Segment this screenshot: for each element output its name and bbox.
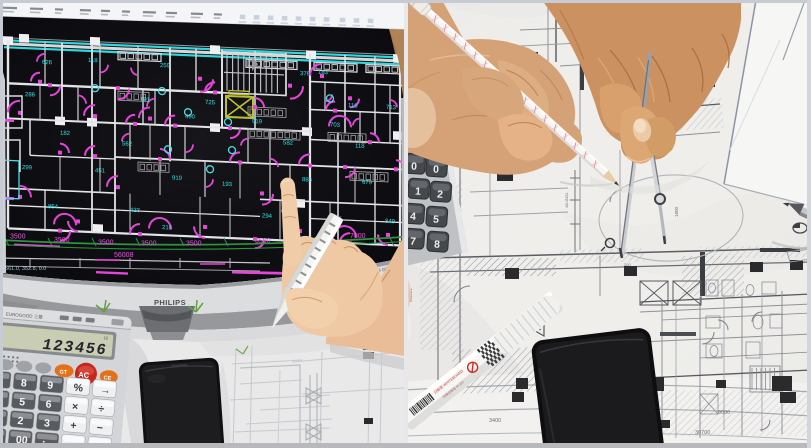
svg-text:GT: GT bbox=[59, 369, 68, 376]
svg-text:849: 849 bbox=[385, 219, 396, 225]
svg-text:3500: 3500 bbox=[141, 241, 157, 248]
svg-text:−: − bbox=[96, 422, 103, 434]
svg-text:9000: 9000 bbox=[718, 410, 730, 416]
svg-text:679: 679 bbox=[362, 180, 373, 186]
svg-text:8: 8 bbox=[20, 377, 27, 389]
svg-text:0: 0 bbox=[433, 163, 440, 175]
svg-text:376: 376 bbox=[300, 71, 311, 77]
svg-text:713: 713 bbox=[386, 105, 397, 111]
svg-text:116: 116 bbox=[348, 103, 358, 109]
svg-text:919: 919 bbox=[172, 176, 183, 182]
svg-text:286: 286 bbox=[25, 92, 36, 98]
svg-text:3500: 3500 bbox=[186, 241, 202, 248]
svg-text:259: 259 bbox=[160, 63, 171, 69]
svg-text:118: 118 bbox=[355, 144, 365, 150]
svg-text:%: % bbox=[73, 382, 84, 395]
svg-text:+: + bbox=[70, 420, 77, 432]
svg-text:182: 182 bbox=[60, 131, 71, 137]
svg-text:3561.0, 352.8, 0.0: 3561.0, 352.8, 0.0 bbox=[2, 266, 46, 272]
svg-text:9: 9 bbox=[47, 379, 54, 391]
svg-text:886: 886 bbox=[302, 177, 313, 183]
svg-text:8: 8 bbox=[434, 238, 441, 250]
svg-text:3: 3 bbox=[43, 417, 50, 429]
svg-text:725: 725 bbox=[205, 100, 216, 106]
svg-text:191: 191 bbox=[140, 97, 151, 103]
svg-text:2: 2 bbox=[437, 188, 444, 200]
svg-text:46145251: 46145251 bbox=[565, 192, 569, 208]
svg-text:4: 4 bbox=[410, 210, 417, 222]
svg-text:193: 193 bbox=[222, 182, 233, 188]
svg-text:PHILIPS: PHILIPS bbox=[154, 298, 186, 307]
svg-text:×: × bbox=[72, 401, 79, 413]
svg-text:3400: 3400 bbox=[489, 418, 501, 424]
svg-text:919: 919 bbox=[252, 119, 263, 125]
svg-text:294: 294 bbox=[262, 213, 273, 219]
svg-text:854: 854 bbox=[48, 204, 59, 210]
svg-text:118: 118 bbox=[88, 58, 98, 64]
svg-text:1: 1 bbox=[415, 185, 422, 197]
svg-text:562: 562 bbox=[122, 141, 133, 147]
svg-text:3500: 3500 bbox=[54, 237, 70, 244]
svg-text:5: 5 bbox=[433, 213, 440, 225]
svg-text:703: 703 bbox=[330, 122, 341, 128]
svg-text:0: 0 bbox=[411, 160, 418, 172]
svg-text:30700: 30700 bbox=[695, 430, 710, 436]
svg-text:3500: 3500 bbox=[10, 234, 26, 241]
svg-text:200: 200 bbox=[624, 262, 631, 267]
svg-text:7000: 7000 bbox=[350, 233, 366, 240]
svg-text:7: 7 bbox=[410, 235, 417, 247]
svg-text:626: 626 bbox=[42, 60, 53, 66]
svg-text:183: 183 bbox=[318, 70, 329, 76]
svg-text:3500: 3500 bbox=[98, 239, 114, 246]
svg-text:→: → bbox=[100, 384, 112, 397]
svg-text:6: 6 bbox=[45, 398, 52, 410]
svg-text:423: 423 bbox=[130, 208, 141, 214]
svg-text:451: 451 bbox=[95, 168, 106, 174]
svg-text:2: 2 bbox=[17, 415, 24, 427]
svg-text:582: 582 bbox=[283, 140, 294, 146]
svg-text:3500: 3500 bbox=[255, 238, 271, 245]
svg-text:218: 218 bbox=[162, 225, 173, 231]
svg-text:5: 5 bbox=[19, 396, 26, 408]
svg-text:299: 299 bbox=[22, 165, 33, 171]
svg-text:56008: 56008 bbox=[114, 252, 134, 259]
svg-text:1800: 1800 bbox=[674, 206, 679, 217]
